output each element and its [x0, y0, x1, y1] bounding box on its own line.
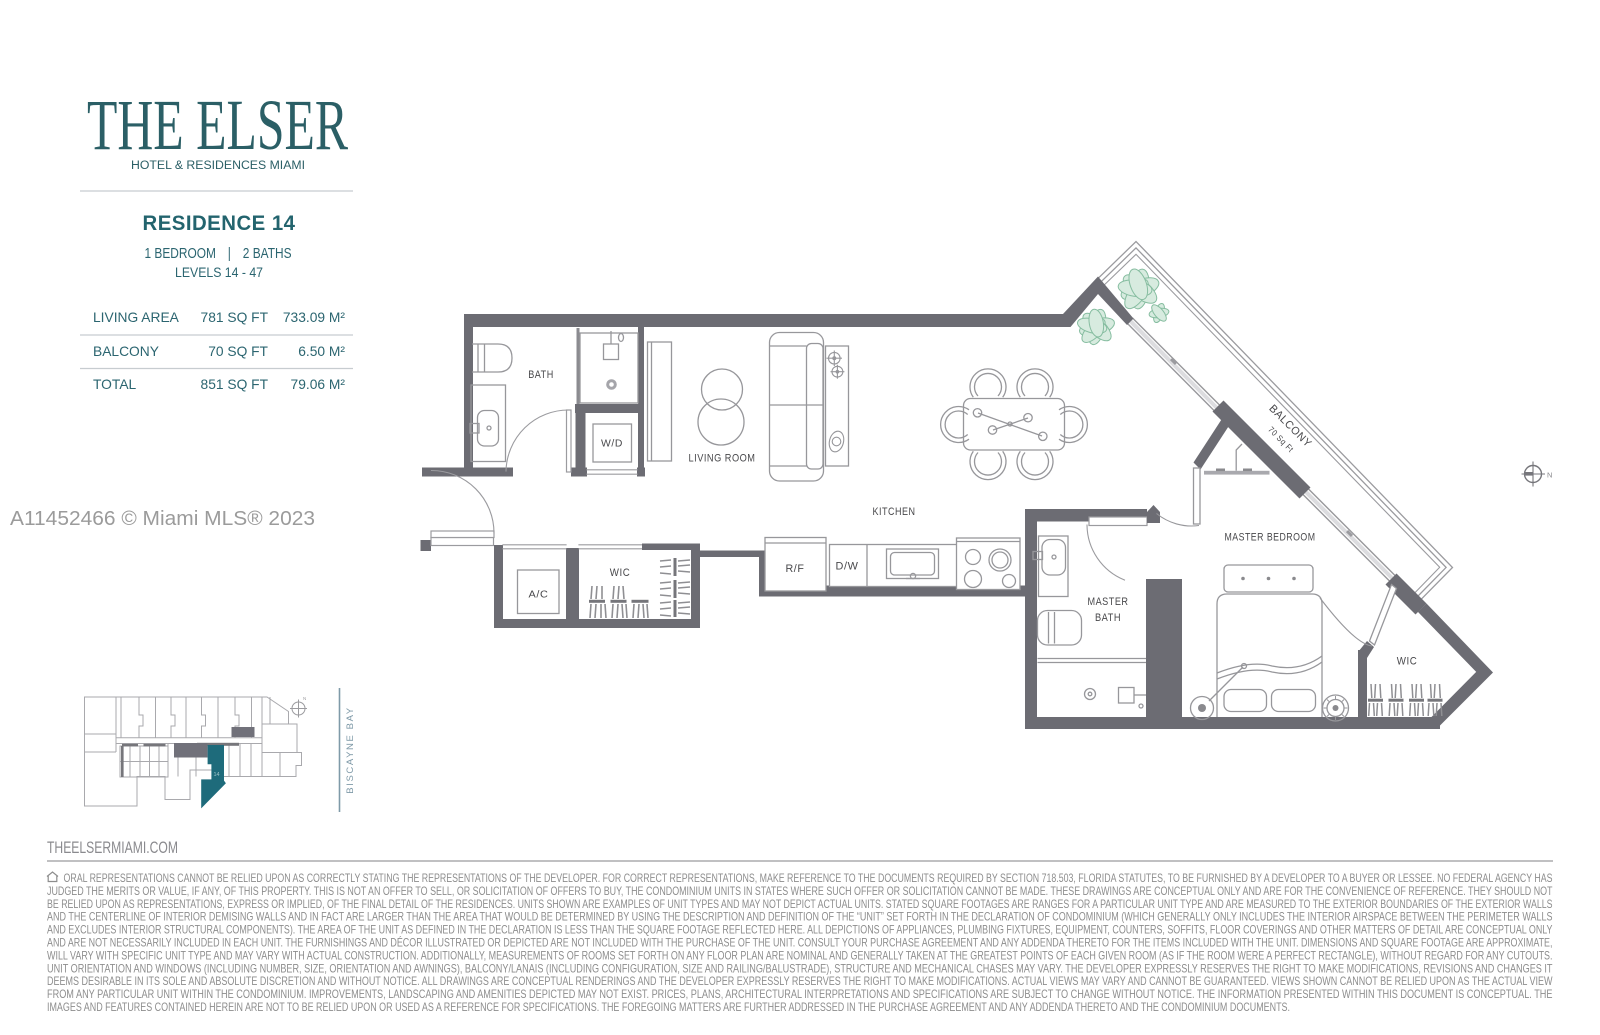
svg-text:70 SQ FT: 70 SQ FT — [208, 344, 268, 359]
svg-text:N: N — [303, 696, 306, 701]
svg-text:JUDGED THE MERITS OR VALUE, IF: JUDGED THE MERITS OR VALUE, IF ANY, OF T… — [47, 884, 1553, 898]
svg-text:14: 14 — [213, 772, 219, 778]
svg-text:AND EXCLUDES INTERIOR STRUCTUR: AND EXCLUDES INTERIOR STRUCTURAL COMPONE… — [47, 923, 1553, 937]
svg-text:1 BEDROOM | 2 BATHS: 1 BEDROOM | 2 BATHS — [145, 246, 292, 262]
svg-text:AND ARE NOT NECESSARILY INCLUD: AND ARE NOT NECESSARILY INCLUDED IN EACH… — [47, 935, 1553, 950]
svg-text:6.50 M²: 6.50 M² — [298, 344, 345, 359]
svg-text:RESIDENCE 14: RESIDENCE 14 — [143, 211, 296, 235]
svg-text:79.06 M²: 79.06 M² — [291, 377, 346, 392]
svg-text:A11452466 © Miami MLS® 2023: A11452466 © Miami MLS® 2023 — [10, 507, 315, 530]
svg-text:851 SQ FT: 851 SQ FT — [201, 377, 269, 392]
svg-text:A/C: A/C — [529, 589, 549, 601]
svg-text:LIVING AREA: LIVING AREA — [93, 310, 180, 325]
svg-text:781 SQ FT: 781 SQ FT — [201, 310, 269, 325]
svg-text:MASTER: MASTER — [1088, 596, 1129, 608]
svg-text:UNIT ORIENTATION AND WINDOWS (: UNIT ORIENTATION AND WINDOWS (INCLUDING … — [47, 961, 1553, 975]
svg-text:THEELSERMIAMI.COM: THEELSERMIAMI.COM — [47, 839, 178, 857]
svg-text:WIC: WIC — [610, 567, 631, 579]
svg-text:733.09 M²: 733.09 M² — [283, 310, 346, 325]
svg-text:IMAGES AND FEATURES CONTAINED: IMAGES AND FEATURES CONTAINED HEREIN ARE… — [47, 1000, 1290, 1014]
svg-text:WILL VARY WITH SPECIFIC UNIT T: WILL VARY WITH SPECIFIC UNIT TYPE AND MA… — [47, 948, 1553, 962]
svg-text:WIC: WIC — [1397, 656, 1418, 668]
svg-text:KITCHEN: KITCHEN — [873, 506, 916, 518]
svg-text:D/W: D/W — [836, 561, 859, 573]
svg-text:ORAL REPRESENTATIONS CANNOT BE: ORAL REPRESENTATIONS CANNOT BE RELIED UP… — [64, 871, 1553, 885]
svg-text:BISCAYNE BAY: BISCAYNE BAY — [345, 706, 356, 793]
svg-text:LIVING ROOM: LIVING ROOM — [689, 453, 756, 465]
svg-text:BATH: BATH — [528, 369, 554, 381]
svg-text:DEEMS DESIRABLE IN ITS SOLE AN: DEEMS DESIRABLE IN ITS SOLE AND ABSOLUTE… — [47, 974, 1553, 988]
svg-text:HOTEL & RESIDENCES MIAMI: HOTEL & RESIDENCES MIAMI — [131, 160, 305, 172]
svg-text:R/F: R/F — [786, 563, 805, 575]
svg-text:THE ELSER: THE ELSER — [87, 85, 348, 165]
svg-text:BATH: BATH — [1095, 612, 1121, 624]
svg-text:BE RELIED UPON AS REPRESENTATI: BE RELIED UPON AS REPRESENTATIONS, EXPRE… — [47, 897, 1553, 911]
svg-text:LEVELS 14 - 47: LEVELS 14 - 47 — [175, 264, 263, 280]
svg-text:FROM ANY PARTICULAR UNIT WITHI: FROM ANY PARTICULAR UNIT WITHIN THE COND… — [47, 987, 1553, 1001]
svg-text:N: N — [1547, 471, 1552, 480]
svg-text:BALCONY: BALCONY — [93, 344, 159, 359]
svg-text:W/D: W/D — [601, 438, 623, 450]
svg-text:AND THE CENTERLINE OF INTERIOR: AND THE CENTERLINE OF INTERIOR DEMISING … — [47, 910, 1553, 924]
svg-text:TOTAL: TOTAL — [93, 377, 137, 392]
svg-text:MASTER BEDROOM: MASTER BEDROOM — [1225, 532, 1316, 544]
